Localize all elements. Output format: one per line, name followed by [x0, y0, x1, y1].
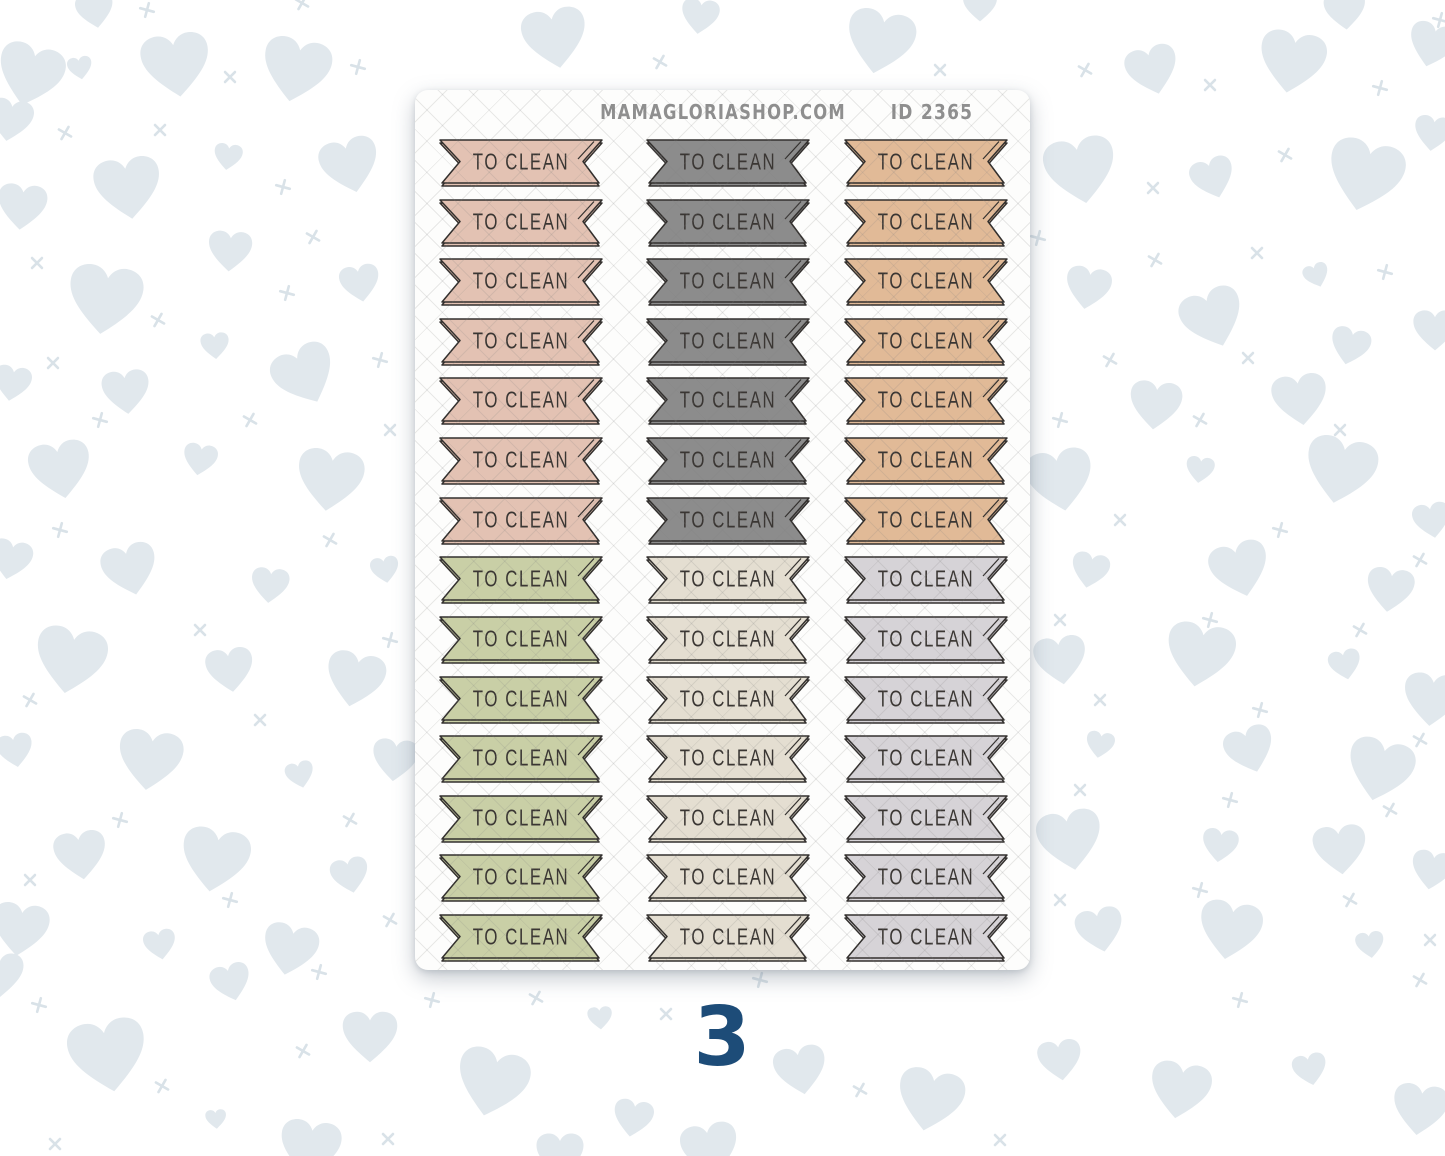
- heart-icon: [1407, 846, 1445, 893]
- flag-sticker: TO CLEAN: [437, 794, 605, 844]
- flag-label: TO CLEAN: [680, 389, 776, 414]
- heart-icon: [1309, 821, 1370, 878]
- flag-label: TO CLEAN: [878, 865, 974, 890]
- heart-icon: [678, 0, 723, 37]
- plus-mark-icon: [347, 56, 369, 78]
- plus-mark-icon: [290, 0, 315, 15]
- flag-label: TO CLEAN: [473, 269, 569, 294]
- flag-label: TO CLEAN: [878, 567, 974, 592]
- heart-icon: [204, 1108, 228, 1130]
- plus-mark-icon: [1087, 687, 1112, 712]
- plus-mark-icon: [291, 1039, 316, 1064]
- heart-icon: [769, 1040, 832, 1099]
- heart-icon: [141, 927, 180, 964]
- heart-icon: [1061, 262, 1116, 314]
- heart-icon: [1067, 548, 1114, 592]
- flag-sticker: TO CLEAN: [644, 853, 812, 903]
- flag-sticker: TO CLEAN: [437, 555, 605, 605]
- flag-label: TO CLEAN: [878, 329, 974, 354]
- plus-mark-icon: [136, 0, 158, 21]
- flag-label: TO CLEAN: [680, 448, 776, 473]
- page-number: 3: [682, 992, 762, 1084]
- heart-icon: [516, 1, 594, 74]
- flag-sticker: TO CLEAN: [437, 317, 605, 367]
- flag-label: TO CLEAN: [680, 687, 776, 712]
- heart-icon: [1119, 38, 1185, 101]
- heart-icon: [1159, 616, 1241, 694]
- flag-label: TO CLEAN: [878, 687, 974, 712]
- heart-icon: [206, 958, 257, 1006]
- plus-mark-icon: [1027, 227, 1049, 249]
- plus-mark-icon: [749, 969, 771, 991]
- heart-icon: [1289, 1050, 1331, 1090]
- plus-mark-icon: [1249, 699, 1271, 721]
- heart-icon: [136, 27, 217, 103]
- plus-mark-icon: [219, 889, 241, 911]
- flag-sticker: TO CLEAN: [842, 555, 1010, 605]
- flag-label: TO CLEAN: [473, 925, 569, 950]
- heart-icon: [1399, 669, 1445, 730]
- heart-icon: [0, 535, 36, 585]
- flag-label: TO CLEAN: [680, 806, 776, 831]
- plus-mark-icon: [147, 117, 172, 142]
- plus-mark-icon: [421, 989, 443, 1011]
- plus-mark-icon: [1219, 789, 1241, 811]
- flag-label: TO CLEAN: [878, 806, 974, 831]
- plus-mark-icon: [53, 121, 78, 146]
- product-image: MAMAGLORIASHOP.COM ID 2365 TO CLEANTO CL…: [0, 0, 1445, 1156]
- plus-mark-icon: [648, 50, 673, 75]
- plus-mark-icon: [338, 808, 363, 833]
- heart-icon: [23, 435, 97, 505]
- flag-sticker: TO CLEAN: [644, 734, 812, 784]
- heart-icon: [1029, 631, 1091, 689]
- flag-sticker: TO CLEAN: [437, 913, 605, 963]
- heart-icon: [1071, 902, 1129, 957]
- flag-label: TO CLEAN: [680, 210, 776, 235]
- plus-mark-icon: [187, 617, 212, 642]
- plus-mark-icon: [377, 417, 402, 442]
- plus-mark-icon: [40, 350, 65, 375]
- flag-label: TO CLEAN: [878, 746, 974, 771]
- heart-icon: [0, 361, 35, 404]
- flag-sticker: TO CLEAN: [644, 317, 812, 367]
- flag-sticker: TO CLEAN: [644, 436, 812, 486]
- heart-icon: [1317, 131, 1412, 222]
- plus-mark-icon: [379, 629, 401, 651]
- flag-label: TO CLEAN: [680, 269, 776, 294]
- heart-icon: [1125, 377, 1185, 433]
- flag-label: TO CLEAN: [878, 508, 974, 533]
- heart-icon: [1083, 729, 1117, 761]
- heart-icon: [1199, 825, 1241, 865]
- plus-mark-icon: [524, 986, 549, 1011]
- flag-sticker: TO CLEAN: [644, 675, 812, 725]
- plus-mark-icon: [1408, 548, 1433, 573]
- flag-label: TO CLEAN: [473, 448, 569, 473]
- plus-mark-icon: [1369, 77, 1391, 99]
- flag-sticker: TO CLEAN: [842, 257, 1010, 307]
- flag-label: TO CLEAN: [878, 269, 974, 294]
- plus-mark-icon: [1107, 507, 1132, 532]
- flag-sticker: TO CLEAN: [437, 615, 605, 665]
- plus-mark-icon: [1348, 618, 1373, 643]
- flag-label: TO CLEAN: [473, 210, 569, 235]
- plus-mark-icon: [146, 308, 171, 333]
- heart-icon: [179, 441, 220, 480]
- heart-icon: [89, 151, 167, 225]
- heart-icon: [72, 0, 118, 32]
- plus-mark-icon: [1408, 968, 1433, 993]
- plus-mark-icon: [1047, 887, 1072, 912]
- flag-label: TO CLEAN: [473, 150, 569, 175]
- plus-mark-icon: [1374, 261, 1396, 283]
- flag-label: TO CLEAN: [878, 210, 974, 235]
- plus-mark-icon: [1047, 607, 1072, 632]
- heart-icon: [1388, 1080, 1445, 1141]
- heart-icon: [282, 758, 318, 792]
- plus-mark-icon: [1049, 409, 1071, 431]
- heart-icon: [1031, 803, 1109, 876]
- heart-icon: [202, 644, 258, 697]
- plus-mark-icon: [49, 519, 71, 541]
- plus-mark-icon: [1244, 240, 1269, 265]
- heart-icon: [1037, 130, 1123, 211]
- plus-mark-icon: [927, 57, 952, 82]
- plus-mark-icon: [247, 707, 272, 732]
- flag-label: TO CLEAN: [680, 925, 776, 950]
- flag-sticker: TO CLEAN: [437, 376, 605, 426]
- heart-icon: [1192, 894, 1268, 965]
- plus-mark-icon: [1098, 348, 1123, 373]
- flag-sticker: TO CLEAN: [842, 317, 1010, 367]
- heart-icon: [1268, 370, 1333, 431]
- heart-icon: [676, 1118, 745, 1156]
- heart-icon: [199, 331, 231, 361]
- plus-mark-icon: [375, 1126, 400, 1151]
- plus-mark-icon: [272, 176, 294, 198]
- heart-icon: [1321, 0, 1368, 32]
- heart-icon: [336, 260, 384, 305]
- flag-label: TO CLEAN: [680, 150, 776, 175]
- heart-icon: [27, 620, 113, 701]
- plus-mark-icon: [1140, 175, 1165, 200]
- plus-mark-icon: [28, 994, 50, 1016]
- heart-icon: [1353, 929, 1387, 961]
- sticker-grid: TO CLEANTO CLEANTO CLEANTO CLEANTO CLEAN…: [415, 90, 1030, 970]
- flag-sticker: TO CLEAN: [842, 734, 1010, 784]
- plus-mark-icon: [1417, 927, 1442, 952]
- plus-mark-icon: [1067, 777, 1092, 802]
- heart-icon: [368, 554, 402, 586]
- heart-icon: [1020, 442, 1100, 518]
- plus-mark-icon: [17, 867, 42, 892]
- heart-icon: [838, 2, 922, 82]
- flag-sticker: TO CLEAN: [842, 376, 1010, 426]
- flag-label: TO CLEAN: [878, 627, 974, 652]
- flag-sticker: TO CLEAN: [842, 794, 1010, 844]
- heart-icon: [95, 537, 164, 603]
- plus-mark-icon: [1197, 72, 1222, 97]
- flag-sticker: TO CLEAN: [644, 794, 812, 844]
- heart-icon: [0, 94, 37, 146]
- flag-label: TO CLEAN: [473, 806, 569, 831]
- plus-mark-icon: [18, 688, 43, 713]
- plus-mark-icon: [109, 809, 131, 831]
- flag-sticker: TO CLEAN: [437, 436, 605, 486]
- plus-mark-icon: [1338, 888, 1363, 913]
- flag-sticker: TO CLEAN: [842, 675, 1010, 725]
- plus-mark-icon: [1143, 248, 1168, 273]
- flag-label: TO CLEAN: [680, 508, 776, 533]
- flag-sticker: TO CLEAN: [437, 675, 605, 725]
- heart-icon: [262, 334, 347, 417]
- plus-mark-icon: [1188, 408, 1213, 433]
- heart-icon: [313, 131, 387, 201]
- flag-sticker: TO CLEAN: [644, 496, 812, 546]
- heart-icon: [206, 228, 255, 273]
- heart-icon: [1185, 151, 1242, 205]
- heart-icon: [1411, 112, 1445, 154]
- flag-sticker: TO CLEAN: [437, 853, 605, 903]
- flag-sticker: TO CLEAN: [644, 198, 812, 248]
- plus-mark-icon: [848, 1078, 873, 1103]
- plus-mark-icon: [653, 1001, 678, 1026]
- heart-icon: [61, 259, 148, 341]
- flag-sticker: TO CLEAN: [842, 138, 1010, 188]
- plus-mark-icon: [1235, 345, 1260, 370]
- plus-mark-icon: [318, 528, 343, 553]
- flag-sticker: TO CLEAN: [644, 257, 812, 307]
- flag-sticker: TO CLEAN: [437, 496, 605, 546]
- heart-icon: [327, 853, 374, 897]
- plus-mark-icon: [1229, 989, 1251, 1011]
- heart-icon: [49, 826, 111, 884]
- heart-icon: [61, 1012, 155, 1101]
- flag-label: TO CLEAN: [473, 687, 569, 712]
- heart-icon: [1218, 719, 1282, 781]
- plus-mark-icon: [89, 409, 111, 431]
- flag-sticker: TO CLEAN: [842, 913, 1010, 963]
- heart-icon: [319, 646, 392, 715]
- flag-sticker: TO CLEAN: [842, 615, 1010, 665]
- heart-icon: [0, 729, 37, 770]
- heart-icon: [0, 180, 50, 233]
- flag-label: TO CLEAN: [680, 865, 776, 890]
- flag-label: TO CLEAN: [878, 448, 974, 473]
- plus-mark-icon: [369, 349, 391, 371]
- heart-icon: [609, 1095, 657, 1140]
- plus-mark-icon: [217, 64, 242, 89]
- flag-sticker: TO CLEAN: [437, 138, 605, 188]
- flag-sticker: TO CLEAN: [437, 257, 605, 307]
- plus-mark-icon: [24, 250, 49, 275]
- heart-icon: [248, 565, 292, 606]
- flag-sticker: TO CLEAN: [842, 853, 1010, 903]
- flag-label: TO CLEAN: [878, 389, 974, 414]
- flag-sticker: TO CLEAN: [644, 138, 812, 188]
- flag-sticker: TO CLEAN: [644, 376, 812, 426]
- flag-label: TO CLEAN: [473, 746, 569, 771]
- flag-label: TO CLEAN: [473, 567, 569, 592]
- heart-icon: [1143, 1055, 1216, 1124]
- plus-mark-icon: [238, 408, 263, 433]
- flag-sticker: TO CLEAN: [842, 496, 1010, 546]
- plus-mark-icon: [42, 1131, 67, 1156]
- flag-label: TO CLEAN: [473, 508, 569, 533]
- flag-label: TO CLEAN: [878, 150, 974, 175]
- heart-icon: [1172, 278, 1255, 358]
- heart-icon: [1325, 646, 1365, 684]
- heart-icon: [1299, 259, 1333, 292]
- heart-icon: [291, 443, 369, 517]
- heart-icon: [1183, 454, 1217, 486]
- heart-icon: [586, 1005, 614, 1031]
- heart-icon: [274, 1114, 346, 1156]
- flag-sticker: TO CLEAN: [644, 913, 812, 963]
- flag-label: TO CLEAN: [473, 627, 569, 652]
- flag-label: TO CLEAN: [473, 865, 569, 890]
- plus-mark-icon: [301, 225, 326, 250]
- heart-icon: [889, 1061, 971, 1139]
- flag-sticker: TO CLEAN: [437, 198, 605, 248]
- flag-label: TO CLEAN: [680, 627, 776, 652]
- heart-icon: [1362, 564, 1418, 617]
- flag-sticker: TO CLEAN: [644, 555, 812, 605]
- heart-icon: [369, 736, 421, 785]
- flag-sticker: TO CLEAN: [842, 198, 1010, 248]
- flag-label: TO CLEAN: [680, 746, 776, 771]
- plus-mark-icon: [378, 908, 403, 933]
- plus-mark-icon: [276, 282, 298, 304]
- heart-icon: [99, 367, 154, 418]
- plus-mark-icon: [1073, 58, 1098, 83]
- flag-label: TO CLEAN: [878, 925, 974, 950]
- heart-icon: [1252, 24, 1332, 100]
- flag-label: TO CLEAN: [680, 567, 776, 592]
- heart-icon: [65, 54, 95, 82]
- heart-icon: [341, 1010, 399, 1063]
- heart-icon: [112, 724, 188, 795]
- heart-icon: [254, 30, 338, 110]
- heart-icon: [447, 1040, 538, 1126]
- heart-icon: [211, 141, 245, 173]
- heart-icon: [1325, 322, 1375, 370]
- heart-icon: [535, 1132, 585, 1156]
- heart-icon: [0, 952, 25, 998]
- flag-sticker: TO CLEAN: [842, 436, 1010, 486]
- plus-mark-icon: [987, 1127, 1012, 1152]
- heart-icon: [1409, 498, 1445, 541]
- flag-label: TO CLEAN: [680, 329, 776, 354]
- heart-icon: [1034, 1036, 1085, 1084]
- plus-mark-icon: [1273, 143, 1298, 168]
- flag-sticker: TO CLEAN: [644, 615, 812, 665]
- sticker-sheet: MAMAGLORIASHOP.COM ID 2365 TO CLEANTO CL…: [415, 90, 1030, 970]
- heart-icon: [962, 0, 998, 23]
- flag-sticker: TO CLEAN: [437, 734, 605, 784]
- heart-icon: [1412, 309, 1445, 351]
- flag-label: TO CLEAN: [473, 389, 569, 414]
- plus-mark-icon: [1269, 519, 1291, 541]
- flag-label: TO CLEAN: [473, 329, 569, 354]
- heart-icon: [174, 821, 256, 899]
- heart-icon: [1203, 534, 1278, 605]
